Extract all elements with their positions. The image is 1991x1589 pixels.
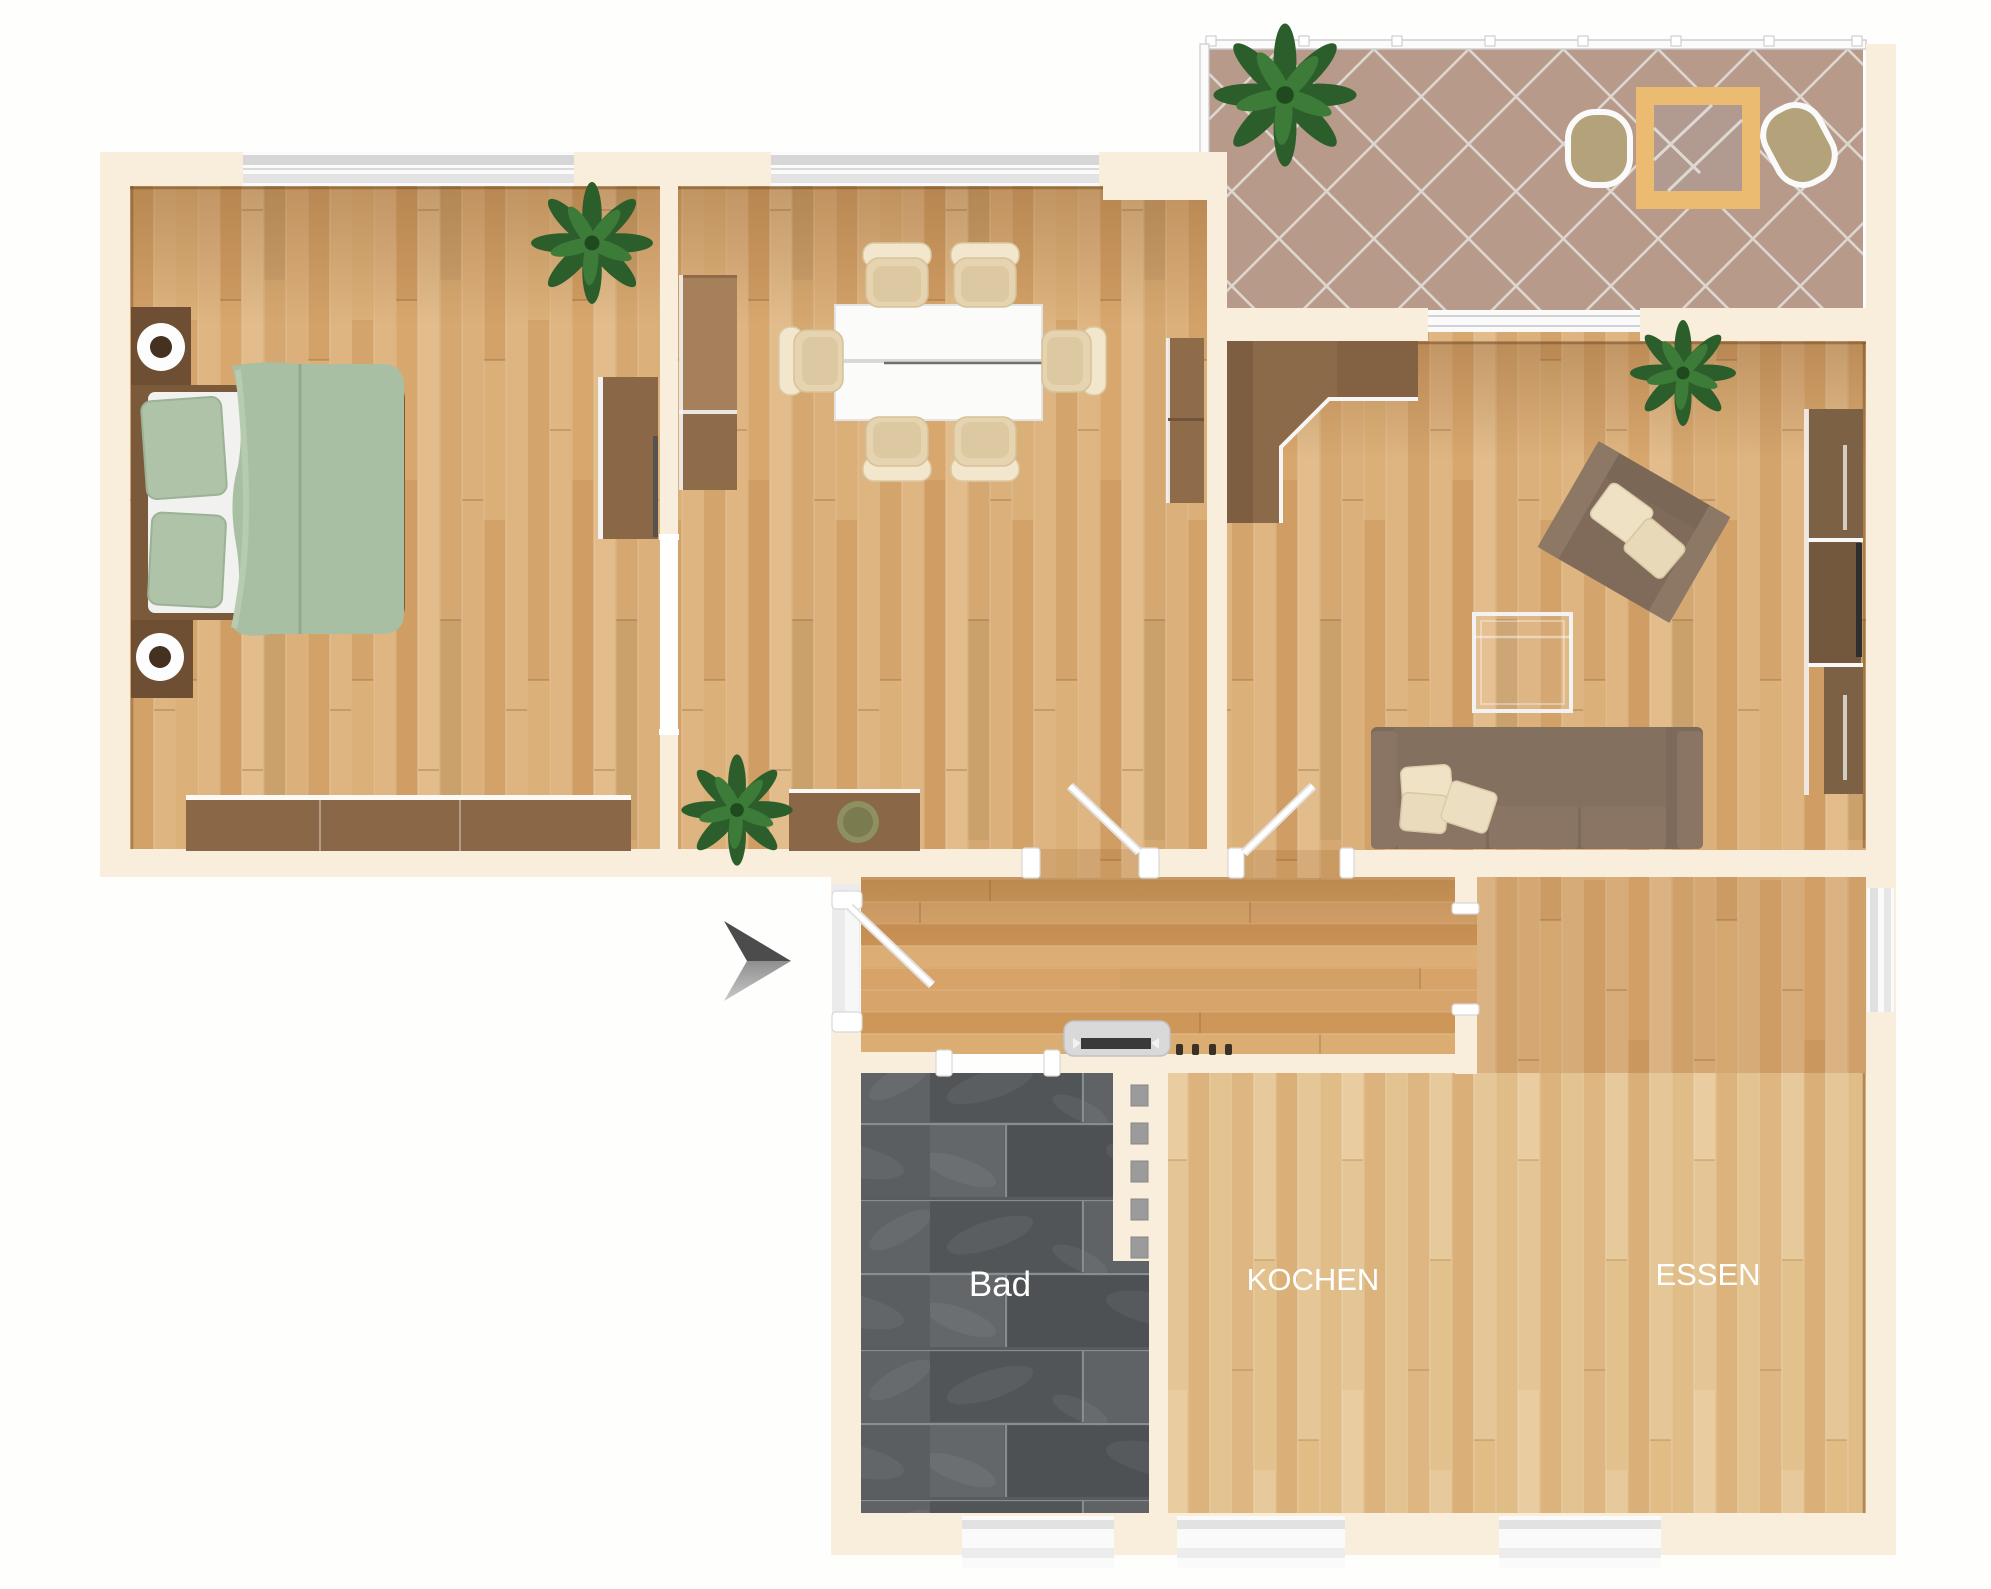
svg-text:Bad: Bad [969,1265,1031,1304]
svg-text:KOCHEN: KOCHEN [1247,1262,1380,1297]
svg-text:ESSEN: ESSEN [1655,1257,1760,1292]
